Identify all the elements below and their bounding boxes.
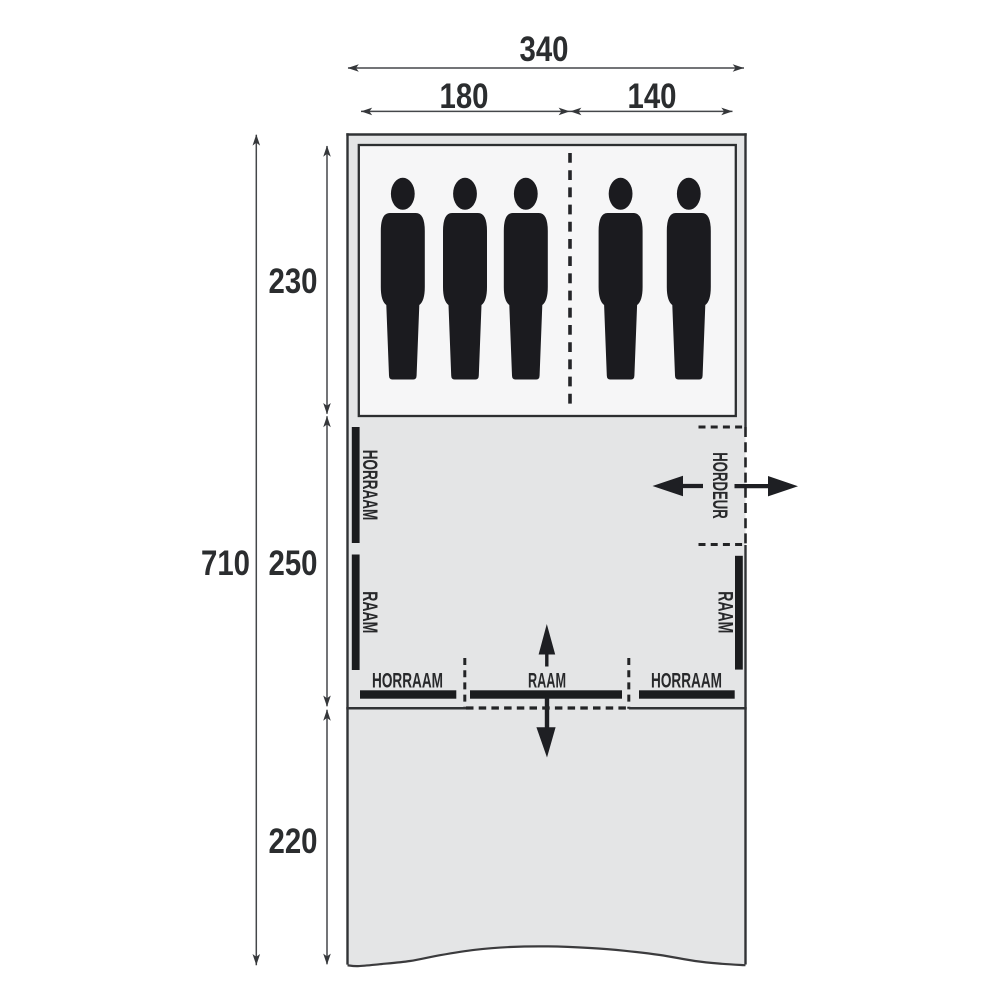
svg-text:RAAM: RAAM — [713, 591, 736, 633]
svg-text:250: 250 — [269, 543, 318, 583]
svg-text:180: 180 — [440, 76, 489, 116]
svg-text:220: 220 — [269, 821, 318, 861]
svg-text:HORDEUR: HORDEUR — [708, 452, 731, 519]
svg-text:RAAM: RAAM — [358, 591, 381, 633]
svg-text:140: 140 — [628, 76, 677, 116]
svg-text:RAAM: RAAM — [528, 670, 566, 693]
svg-text:HORRAAM: HORRAAM — [651, 670, 722, 693]
svg-text:340: 340 — [520, 29, 569, 69]
svg-text:HORRAAM: HORRAAM — [372, 670, 443, 693]
svg-text:HORRAAM: HORRAAM — [358, 450, 381, 521]
svg-text:710: 710 — [201, 543, 250, 583]
svg-text:230: 230 — [269, 261, 318, 301]
